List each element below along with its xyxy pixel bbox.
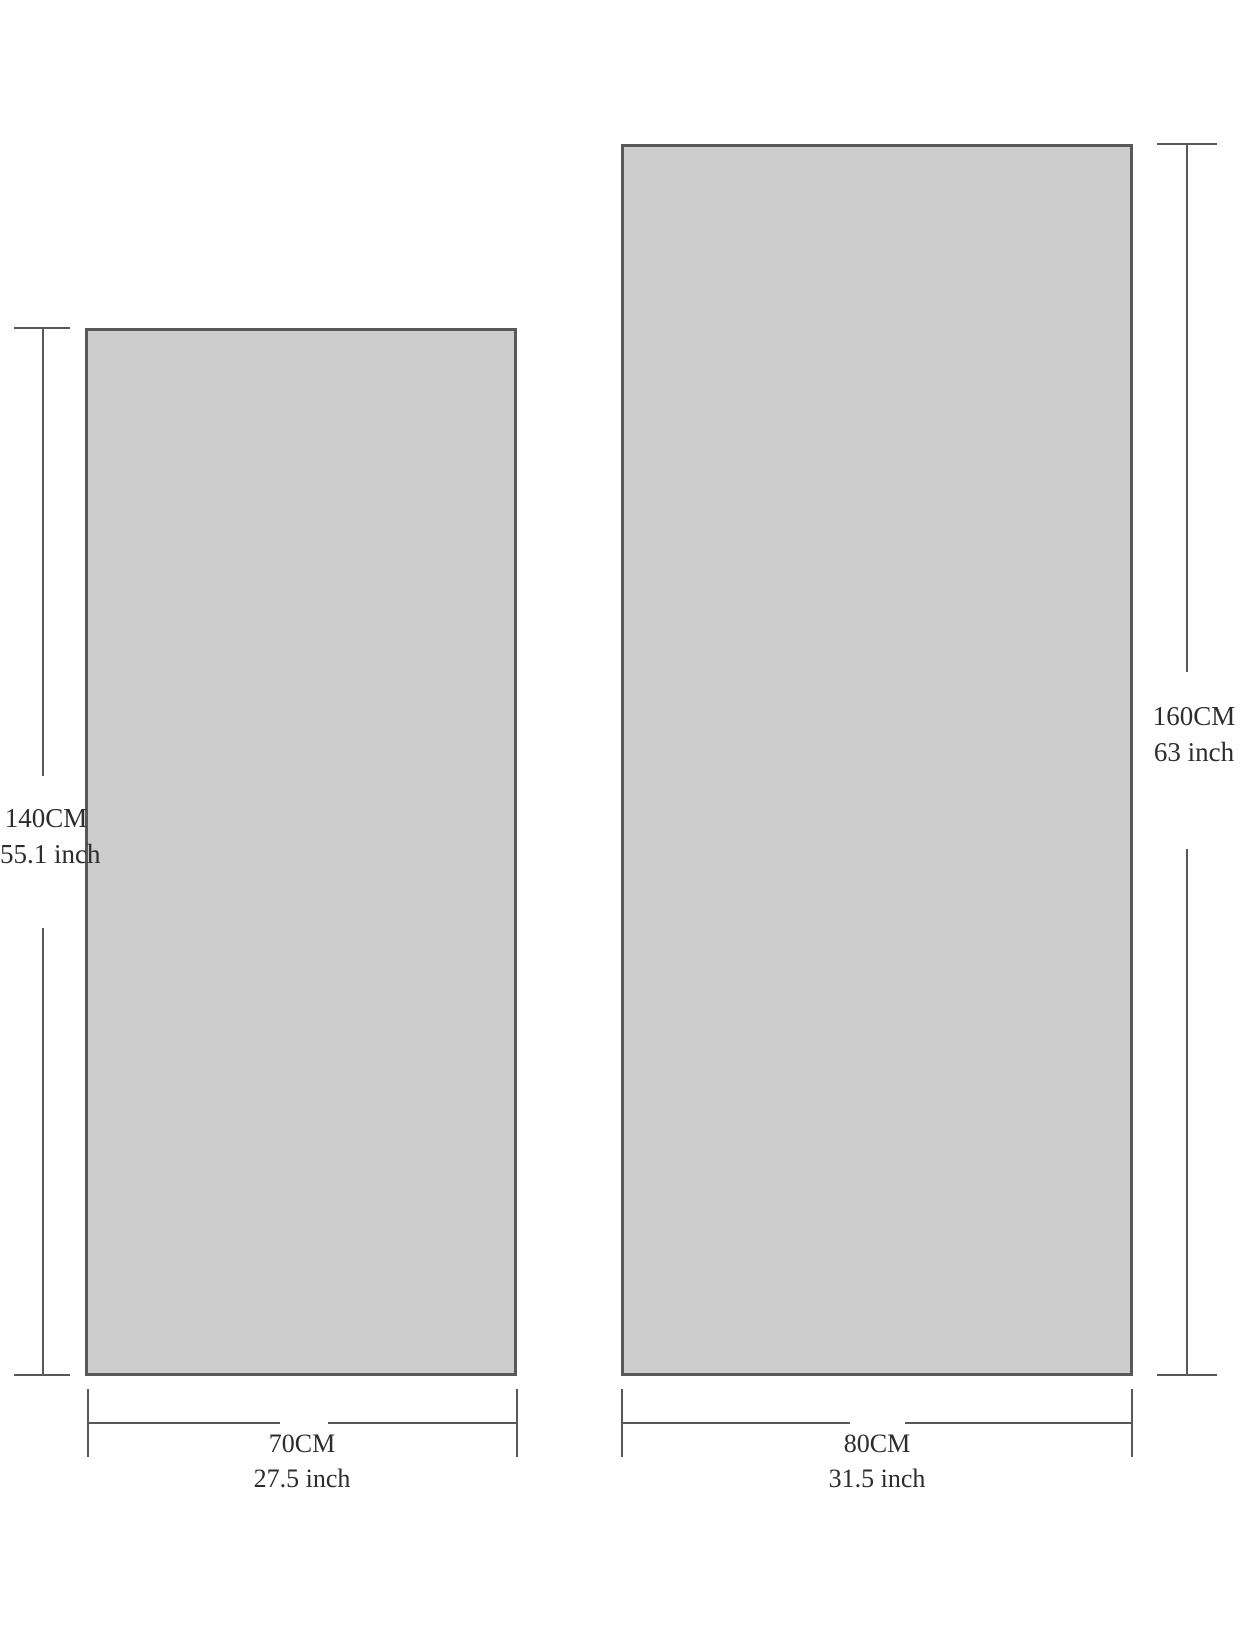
large-width-right-segment-line — [905, 1422, 1131, 1424]
small-width-left-segment-line — [88, 1422, 280, 1424]
size-diagram: 140CM 55.1 inch 160CM 63 inch 70CM 27.5 … — [0, 0, 1242, 1646]
large-width-label: 80CM 31.5 inch — [777, 1426, 977, 1496]
small-height-lower-line — [42, 928, 44, 1376]
large-height-lower-line — [1186, 849, 1188, 1376]
small-height-label: 140CM 55.1 inch — [0, 800, 92, 872]
large-height-cm-text: 160CM — [1146, 698, 1242, 734]
large-height-bottom-cap-line — [1157, 1374, 1217, 1376]
small-size-rectangle — [85, 328, 517, 1376]
large-width-left-segment-line — [622, 1422, 850, 1424]
small-width-label: 70CM 27.5 inch — [202, 1426, 402, 1496]
small-height-cm-text: 140CM — [0, 800, 92, 836]
small-height-bottom-cap-line — [14, 1374, 70, 1376]
small-height-inch-text: 55.1 inch — [0, 836, 92, 872]
large-height-label: 160CM 63 inch — [1146, 698, 1242, 770]
small-height-upper-line — [42, 327, 44, 776]
large-width-right-tick-line — [1131, 1389, 1133, 1457]
large-size-rectangle — [621, 144, 1133, 1376]
large-height-inch-text: 63 inch — [1146, 734, 1242, 770]
small-width-inch-text: 27.5 inch — [202, 1461, 402, 1496]
large-width-inch-text: 31.5 inch — [777, 1461, 977, 1496]
small-width-cm-text: 70CM — [202, 1426, 402, 1461]
small-width-right-segment-line — [328, 1422, 517, 1424]
large-height-upper-line — [1186, 143, 1188, 672]
large-width-cm-text: 80CM — [777, 1426, 977, 1461]
